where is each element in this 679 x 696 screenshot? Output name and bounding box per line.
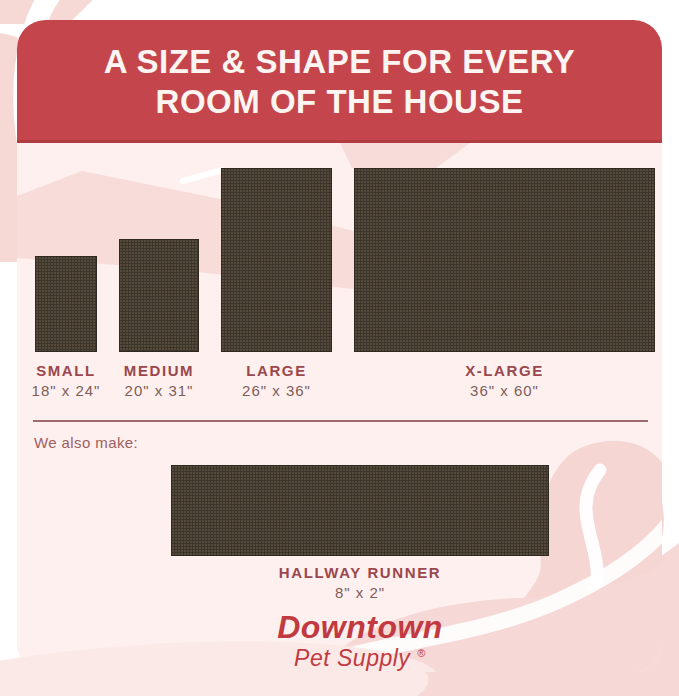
brand-name: Downtown bbox=[277, 609, 443, 646]
mat-swatch-hallway-runner bbox=[171, 465, 549, 556]
brand-logo: Downtown Pet Supply ® bbox=[277, 609, 443, 672]
infographic-canvas: A SIZE & SHAPE FOR EVERY ROOM OF THE HOU… bbox=[0, 0, 679, 696]
size-name: LARGE bbox=[242, 362, 311, 379]
size-label-medium: MEDIUM 20" x 31" bbox=[124, 352, 194, 399]
mat-swatch-medium bbox=[119, 239, 199, 352]
size-dimensions: 18" x 24" bbox=[32, 382, 101, 399]
size-dimensions: 26" x 36" bbox=[242, 382, 311, 399]
size-dimensions: 20" x 31" bbox=[124, 382, 194, 399]
brand-sub-text: Pet Supply bbox=[294, 645, 410, 671]
section-divider bbox=[33, 420, 648, 422]
info-card: A SIZE & SHAPE FOR EVERY ROOM OF THE HOU… bbox=[17, 20, 662, 672]
size-name: MEDIUM bbox=[124, 362, 194, 379]
size-label-small: SMALL 18" x 24" bbox=[32, 352, 101, 399]
runner-name: HALLWAY RUNNER bbox=[279, 564, 441, 581]
size-item-large: LARGE 26" x 36" bbox=[221, 168, 332, 352]
size-dimensions: 36" x 60" bbox=[465, 382, 544, 399]
brand-subtitle: Pet Supply ® bbox=[277, 645, 443, 672]
mat-swatch-xlarge bbox=[354, 168, 655, 352]
registered-mark: ® bbox=[417, 647, 426, 659]
title-banner: A SIZE & SHAPE FOR EVERY ROOM OF THE HOU… bbox=[17, 20, 662, 143]
size-label-large: LARGE 26" x 36" bbox=[242, 352, 311, 399]
size-item-medium: MEDIUM 20" x 31" bbox=[119, 239, 199, 352]
mat-swatch-small bbox=[35, 256, 97, 352]
size-name: SMALL bbox=[32, 362, 101, 379]
size-label-xlarge: X-LARGE 36" x 60" bbox=[465, 352, 544, 399]
size-name: X-LARGE bbox=[465, 362, 544, 379]
runner-label: HALLWAY RUNNER 8" x 2" bbox=[279, 564, 441, 601]
we-also-make-label: We also make: bbox=[34, 434, 138, 451]
size-comparison-row: SMALL 18" x 24" MEDIUM 20" x 31" LARGE bbox=[35, 168, 655, 352]
size-item-small: SMALL 18" x 24" bbox=[35, 256, 97, 352]
title-line-2: ROOM OF THE HOUSE bbox=[156, 82, 524, 122]
title-line-1: A SIZE & SHAPE FOR EVERY bbox=[104, 42, 576, 82]
size-item-xlarge: X-LARGE 36" x 60" bbox=[354, 168, 655, 352]
runner-dimensions: 8" x 2" bbox=[279, 584, 441, 601]
mat-swatch-large bbox=[221, 168, 332, 352]
